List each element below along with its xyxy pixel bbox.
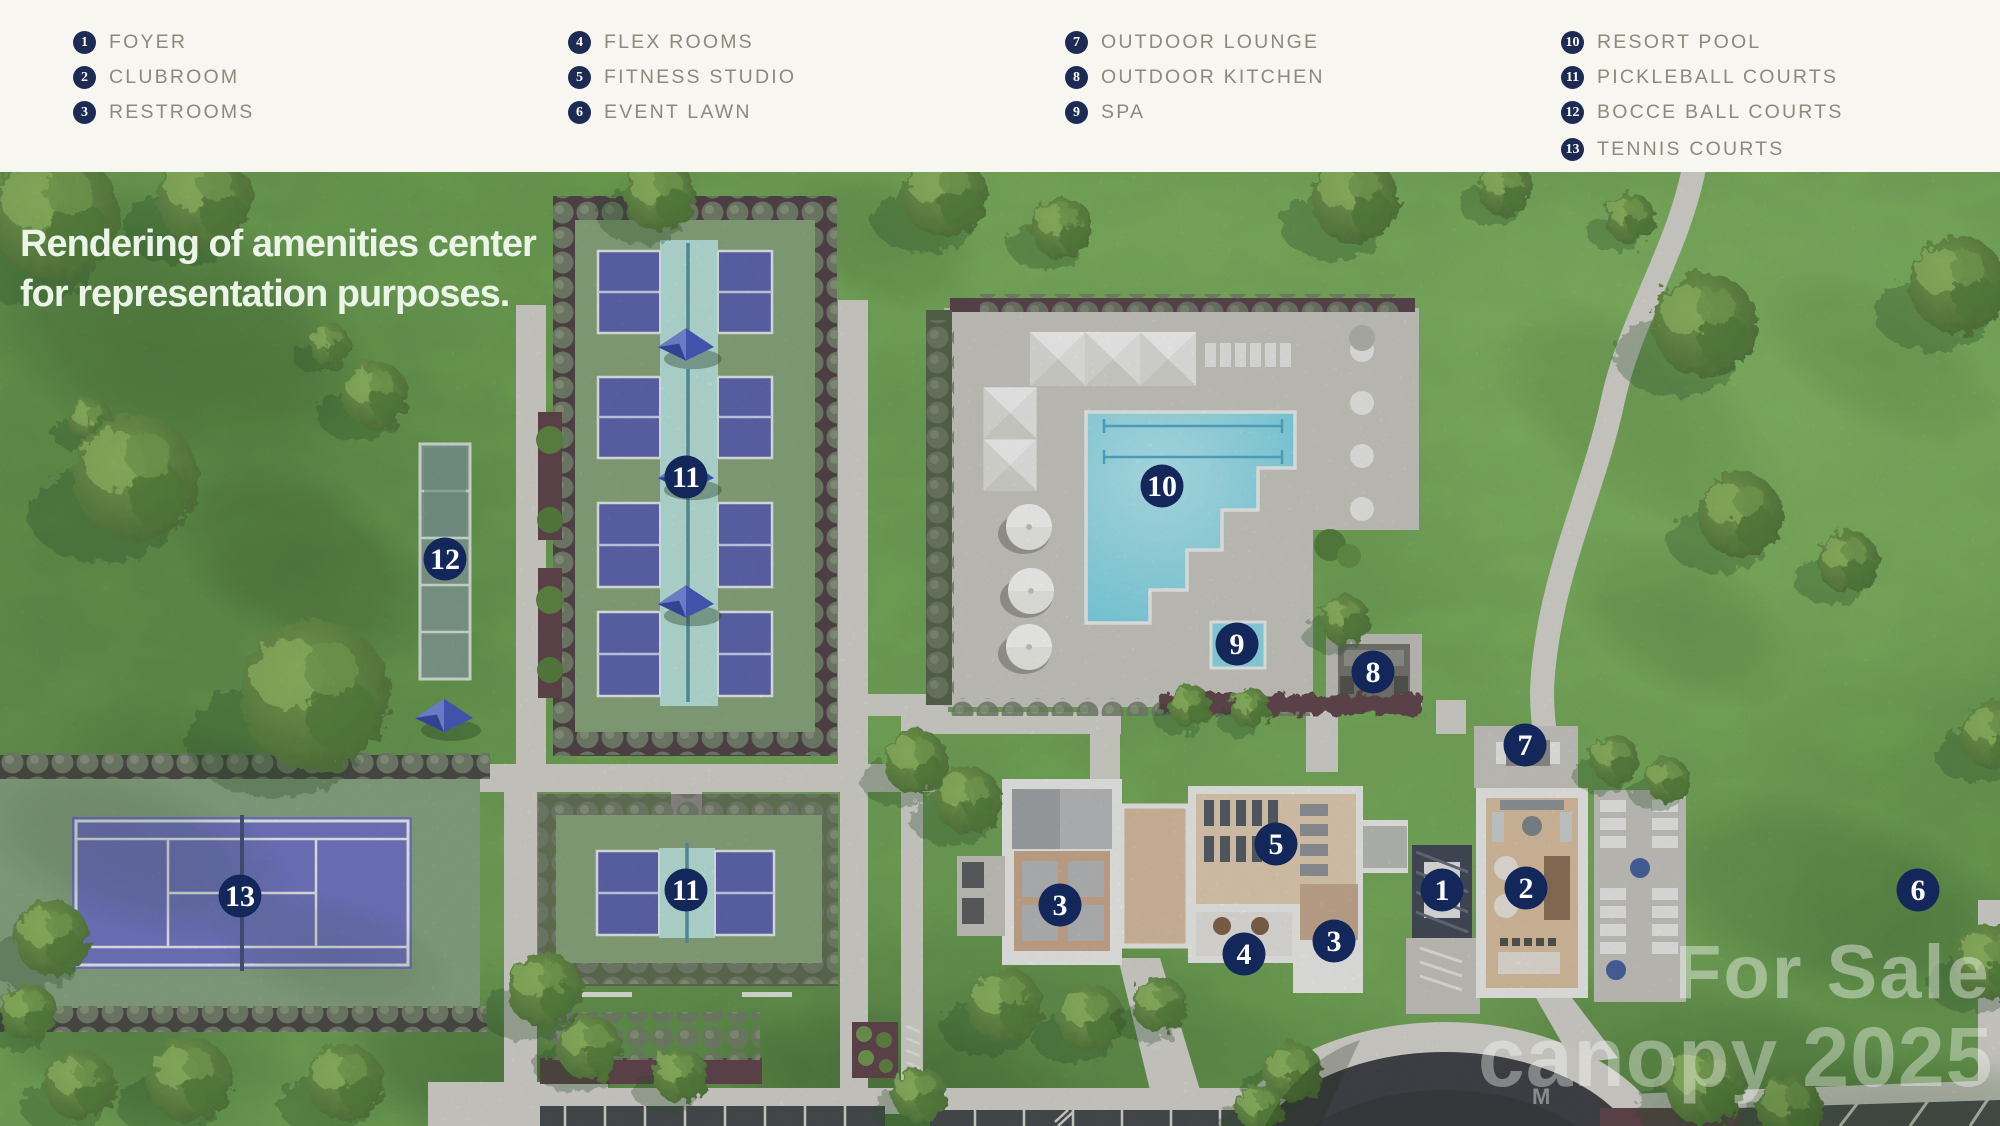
svg-text:11: 11 [672,461,700,494]
svg-text:3: 3 [1053,889,1068,922]
svg-text:1: 1 [1435,874,1450,907]
svg-text:Rendering of amenities center: Rendering of amenities center [20,223,537,265]
svg-text:3: 3 [1327,925,1342,958]
svg-text:13: 13 [225,880,255,913]
svg-text:12: 12 [430,543,460,576]
svg-text:8: 8 [1366,656,1381,689]
svg-text:M: M [1532,1084,1550,1109]
svg-text:7: 7 [1518,729,1533,762]
svg-text:2: 2 [1519,872,1534,905]
svg-text:11: 11 [672,874,700,907]
svg-text:For Sale: For Sale [1675,930,1991,1015]
svg-text:canopy 2025: canopy 2025 [1478,1010,1993,1104]
svg-text:10: 10 [1147,470,1177,503]
svg-text:4: 4 [1237,938,1252,971]
svg-text:for representation purposes.: for representation purposes. [20,273,509,315]
svg-text:9: 9 [1230,628,1245,661]
svg-text:6: 6 [1911,874,1926,907]
svg-text:5: 5 [1269,828,1284,861]
